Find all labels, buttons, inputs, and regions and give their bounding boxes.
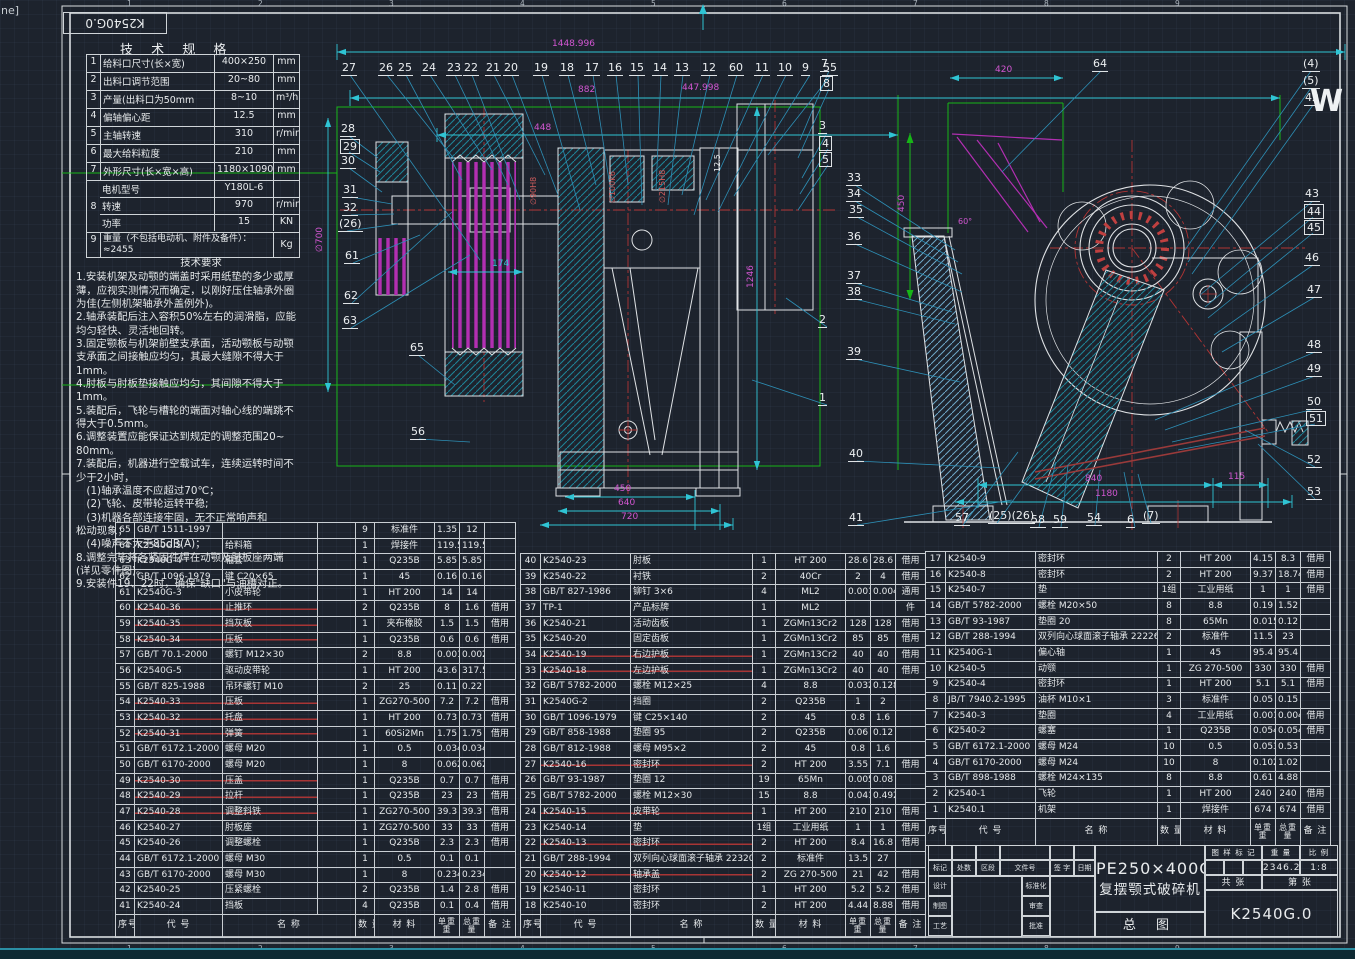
part-callout-24: 24 [421,62,437,76]
part-callout-17: 17 [584,62,600,76]
dimension-text: ∅215H8 [659,170,667,203]
part-callout-3: 3 [818,120,827,134]
part-callout-63: 63 [342,315,358,329]
canvas-bottom-strip [0,948,1355,959]
role-label: 审查 [1022,896,1050,916]
part-callout-26: 26 [378,62,394,76]
rev-header: 标记 [928,860,952,876]
part-callout-48: 48 [1306,339,1322,353]
leader-line [638,75,642,205]
part-callout-1: 1 [818,392,827,406]
tech-line: 80mm。 [76,445,326,458]
part-callout-35: 35 [848,204,864,218]
leader-line [1155,352,1315,420]
rev-cell [952,876,1022,937]
part-callout-58: 58 [1030,514,1046,528]
product-name: 复摆颚式破碎机 [1096,878,1204,898]
rev-cell [1000,845,1050,860]
tech-line: 3.固定颚板与机架前壁支承面，活动颚板与动颚 [76,338,326,351]
rev-cell [976,845,1000,860]
dimension-text: 60° [958,218,972,226]
tech-line: 1.安装机架及动颚的端盖时采用纸垫的多少或厚 [76,271,326,284]
part-callout-53: 53 [1306,486,1322,500]
part-callout-19: 19 [533,62,549,76]
dimension-text: 420 [995,66,1012,75]
part-callout-9: 9 [801,62,810,76]
leader-line [455,75,508,185]
dimension-text: 720 [621,513,638,522]
role-label: 批准 [1022,916,1050,936]
window-title-fragment: ne] [1,4,19,17]
weight-label: 重 量 [1262,845,1300,860]
dimension-text: 1180 [1095,490,1118,499]
rev-cell [952,845,976,860]
part-callout-5: 5 [819,152,832,167]
total-sheets: 共 张 [1205,875,1262,890]
tech-line: 6.调整装置应能保证达到规定的调整范围20~ [76,431,326,444]
leader-line [1245,430,1315,467]
leader-line [855,244,962,292]
cad-application-canvas: ne] W [0,0,1355,959]
dimension-text: 840 [1085,475,1102,484]
tech-line: 薄，应视实测情况而确定，以刚好压住轴承外圈 [76,285,326,298]
leader-line [668,75,683,205]
part-callout-6: 6 [1126,514,1135,528]
role-label: 工艺 [928,916,952,936]
part-callout-57: 57 [954,512,970,526]
tech-line: 7.装配后，机器进行空载试车，连续运转时间不 [76,458,326,471]
part-callout-44: 44 [1304,204,1324,219]
leader-line [855,299,955,324]
part-callout-12: 12 [701,62,717,76]
dimension-text: ∅90H8 [530,177,538,205]
part-callout-38: 38 [846,286,862,300]
leader-line [406,75,462,180]
leader-line [734,75,810,196]
drawing-number: K2540G.0 [1205,890,1338,937]
tech-line: 5.装配后，飞轮与槽轮的端面对轴心线的端跳不 [76,405,326,418]
leader-line [1205,217,1313,307]
leader-line [857,217,962,274]
part-callout-46: 46 [1304,252,1320,266]
tech-line: 2.轴承装配后注入容积50%左右的润滑脂，应能 [76,311,326,324]
sheet-type-label: 总 图 [1095,912,1205,937]
title-block: 标记处数区段文件号签 字日期设计制图工艺标准化审查批准 PE250×400G 复… [928,845,1338,937]
part-callout-11: 11 [754,62,770,76]
sheet-number: 第 张 [1262,875,1338,890]
part-callout-4: (4) [1302,58,1320,72]
part-callout-34: 34 [846,188,862,202]
leader-line [706,75,763,200]
leader-line [718,75,786,212]
rev-header: 签 字 [1050,860,1074,876]
part-callout-22: 22 [463,62,479,76]
tech-line: (4)噪声不大于85dB(A)； [76,538,326,551]
part-callout-40: 40 [848,448,864,462]
dimension-text: 447.998 [682,84,719,93]
revision-grid: 标记处数区段文件号签 字日期设计制图工艺标准化审查批准 [928,845,1095,937]
dimension-text: 882 [578,86,595,95]
part-callout-21: 21 [485,62,501,76]
product-model: PE250×400G [1096,859,1204,878]
part-callout-30: 30 [340,155,356,169]
dimension-text: 115 [1228,473,1245,482]
leader-line [1185,71,1311,250]
part-callout-56: 56 [410,426,426,440]
part-callout-59: 59 [1052,514,1068,528]
technical-requirements: 技术要求 1.安装机架及动颚的端盖时采用纸垫的多少或厚薄，应视实测情况而确定，以… [76,257,326,592]
rev-cell [1074,845,1095,860]
part-callout-64: 64 [1092,58,1108,72]
watermark-w: W [1310,84,1343,119]
tech-line: 4.肘板与肘板垫接触应均匀，其间隙不得大于 [76,378,326,391]
title-block-product: PE250×400G 复摆颚式破碎机 [1095,845,1205,912]
leader-line [1222,297,1315,352]
part-callout-29: 29 [340,139,360,154]
role-label: 设计 [928,876,952,896]
tech-line: 得大于0.5mm。 [76,418,326,431]
scale-label: 比 例 [1300,845,1338,860]
tech-line: 少于2小时， [76,472,326,485]
dimension-text: 640 [618,499,635,508]
dimension-text: 450 [898,195,907,212]
leader-line [1200,201,1313,295]
leader-line [1002,71,1101,172]
tech-line: 支承面之间接触应均匀，其最大缝隙不得大于 [76,351,326,364]
technical-requirements-title: 技术要求 [76,257,326,270]
leader-line [350,75,480,260]
tech-line: 9.安装件19、22时，确保"缺口"与油槽对正。 [76,578,326,591]
dimension-text: 448 [534,124,551,133]
leader-line [1178,424,1315,450]
leader-line [855,359,960,382]
dimension-text: 174 [492,260,509,269]
tech-line: 1mm。 [76,365,326,378]
leader-line [1172,409,1315,442]
part-callout-14: 14 [652,62,668,76]
part-callout-39: 39 [846,346,862,360]
leader-line [418,355,455,385]
tech-line: (1)轴承温度不应超过70℃； [76,485,326,498]
mark-cell [1224,860,1243,875]
dimension-text: 1448.996 [552,40,595,49]
part-callout-18: 18 [559,62,575,76]
dimension-text: ∅100k6 [609,171,617,203]
role-label: 标准化 [1022,876,1050,896]
weight-value: 2346.2 [1262,860,1300,875]
rev-cell [1050,845,1074,860]
part-callout-4: 4 [819,136,832,151]
part-callout-15: 15 [629,62,645,76]
rev-header: 处数 [952,860,976,876]
part-callout-26: (26) [338,218,363,232]
leader-line [798,165,828,210]
rev-cell [1050,876,1095,937]
dimension-text: 450 [614,485,631,494]
scale-value: 1:8 [1300,860,1338,875]
part-callout-65: 65 [409,342,425,356]
part-callout-60: 60 [728,62,744,76]
part-callout-7: 7 [820,58,829,72]
part-callout-2526: (25)(26) [988,510,1035,524]
rev-cell [928,845,952,860]
leader-line [1214,265,1313,335]
part-callout-36: 36 [846,231,862,245]
tech-line: 均匀轻快、灵活地回转。 [76,325,326,338]
role-label: 制图 [928,896,952,916]
rev-header: 文件号 [1000,860,1050,876]
rev-header: 日期 [1074,860,1095,876]
mark-header: 图 样 标 记 [1205,845,1262,860]
dimension-text: 1246 [747,265,756,288]
part-callout-51: 51 [1306,411,1326,426]
part-callout-27: 27 [341,62,357,76]
leader-line [694,75,737,215]
part-callout-50: 50 [1306,396,1322,410]
part-callout-16: 16 [607,62,623,76]
part-callout-62: 62 [343,290,359,304]
part-callout-52: 52 [1306,454,1322,468]
part-callout-32: 32 [342,202,358,216]
leader-line [1188,88,1311,262]
part-callout-28: 28 [340,123,356,137]
part-callout-10: 10 [777,62,793,76]
part-callout-25: 25 [397,62,413,76]
part-callout-61: 61 [344,250,360,264]
part-callout-54: 54 [1086,512,1102,526]
part-callout-47: 47 [1306,284,1322,298]
rev-header: 区段 [976,860,1000,876]
tech-line: 为佳(左侧机架轴承外盖例外)。 [76,298,326,311]
part-callout-43: 43 [1304,188,1320,202]
part-callout-13: 13 [674,62,690,76]
mark-cell [1205,860,1224,875]
mark-cell [1243,860,1262,875]
leader-line [351,255,470,328]
part-callout-8: 8 [820,76,833,91]
part-callout-37: 37 [846,270,862,284]
part-callout-33: 33 [846,172,862,186]
leader-line [752,380,827,405]
tech-line: 8.调整完毕将各紧固件焊在动颚及肘板座两端 [76,552,326,565]
part-callout-20: 20 [503,62,519,76]
leader-line [419,439,470,442]
leader-line [616,75,628,185]
tech-line: (3)机器各部连接牢固，无不正常响声和 [76,512,326,525]
leader-line [542,75,580,210]
tech-line: (2)飞轮、皮带轮运转平稳; [76,498,326,511]
dimension-text: 12.5 [714,154,722,172]
leader-line [855,283,952,312]
part-callout-45: 45 [1304,220,1324,235]
tech-line: (详见零件图)。 [76,565,326,578]
part-callout-41: 41 [848,512,864,526]
part-callout-7: (7) [1142,510,1160,524]
part-callout-23: 23 [446,62,462,76]
leader-line [472,75,520,200]
dimension-text: ∅700 [316,227,325,252]
leader-line [1192,105,1313,274]
tech-line: 1mm。 [76,391,326,404]
part-callout-49: 49 [1306,363,1322,377]
leader-line [353,235,420,263]
part-callout-31: 31 [342,184,358,198]
leader-line [857,461,1000,468]
tech-line: 松动现象； [76,525,326,538]
part-callout-2: 2 [818,314,827,328]
leader-line [430,75,492,170]
